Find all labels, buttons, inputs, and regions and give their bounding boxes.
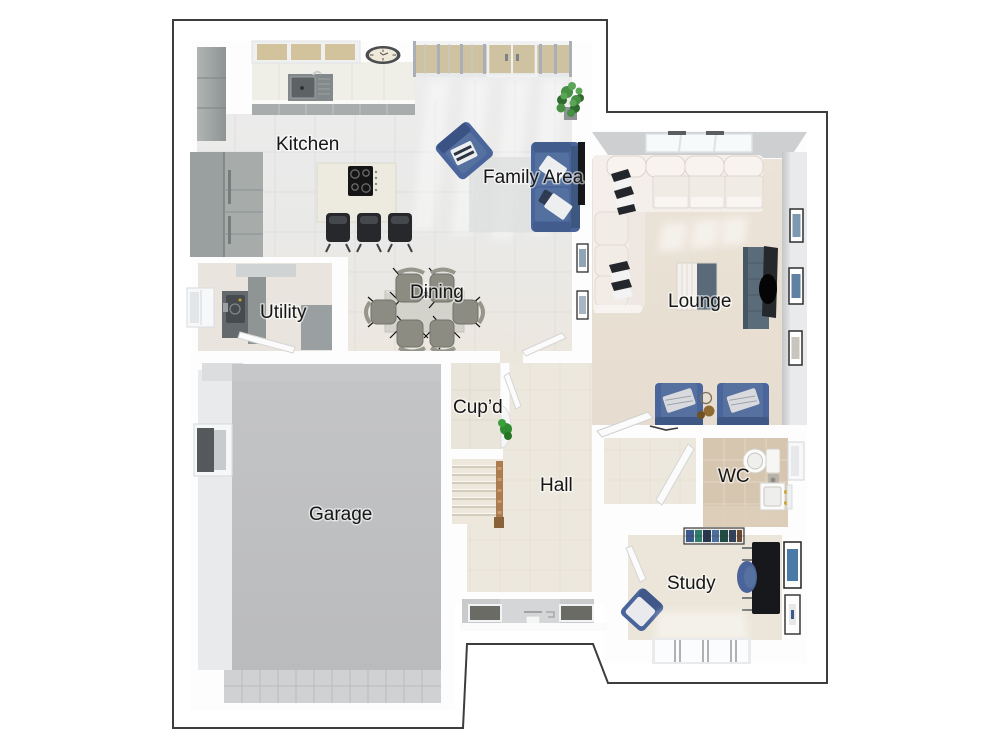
svg-text:Lounge: Lounge (668, 291, 731, 312)
svg-text:Garage: Garage (309, 504, 372, 525)
svg-text:Kitchen: Kitchen (276, 134, 339, 155)
svg-text:Cup’d: Cup’d (453, 397, 503, 418)
svg-text:Utility: Utility (260, 302, 307, 323)
svg-text:Study: Study (667, 573, 716, 594)
svg-text:Family Area: Family Area (483, 167, 584, 188)
svg-text:WC: WC (718, 466, 750, 487)
svg-text:Dining: Dining (410, 282, 464, 303)
svg-text:Hall: Hall (540, 475, 573, 496)
